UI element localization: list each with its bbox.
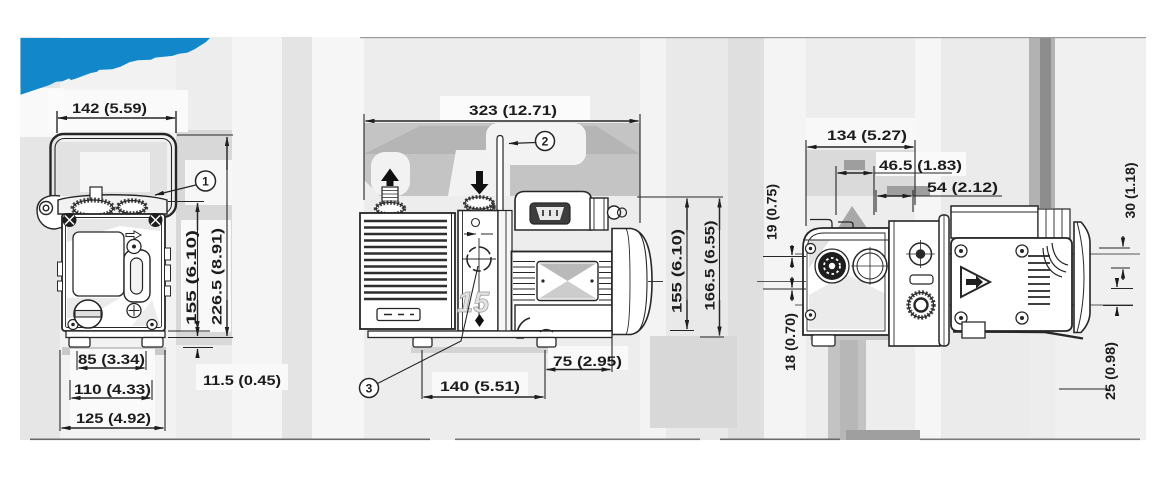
svg-text:140 (5.51): 140 (5.51) [440,378,520,394]
svg-text:125 (4.92): 125 (4.92) [76,410,151,426]
svg-text:85 (3.34): 85 (3.34) [78,351,145,367]
svg-text:155 (6.10): 155 (6.10) [183,230,199,325]
svg-text:11.5 (0.45): 11.5 (0.45) [203,372,281,388]
svg-text:30 (1.18): 30 (1.18) [1122,163,1138,219]
svg-text:15: 15 [457,287,490,319]
svg-text:75 (2.95): 75 (2.95) [553,353,622,369]
svg-text:18 (0.70): 18 (0.70) [782,313,798,371]
svg-text:3: 3 [366,382,373,396]
svg-text:323 (12.71): 323 (12.71) [469,102,557,118]
svg-text:46.5 (1.83): 46.5 (1.83) [879,157,962,173]
svg-text:166.5 (6.55): 166.5 (6.55) [702,221,718,311]
svg-text:134 (5.27): 134 (5.27) [827,127,907,143]
svg-text:2: 2 [542,135,549,149]
svg-text:155 (6.10): 155 (6.10) [669,229,685,313]
svg-text:110 (4.33): 110 (4.33) [74,381,151,397]
svg-text:142 (5.59): 142 (5.59) [72,100,147,116]
svg-text:25 (0.98): 25 (0.98) [1102,342,1118,400]
svg-text:19 (0.75): 19 (0.75) [764,184,780,240]
svg-text:1: 1 [202,175,209,189]
svg-text:226.5 (8.91): 226.5 (8.91) [209,228,225,325]
svg-text:54 (2.12): 54 (2.12) [927,179,998,195]
